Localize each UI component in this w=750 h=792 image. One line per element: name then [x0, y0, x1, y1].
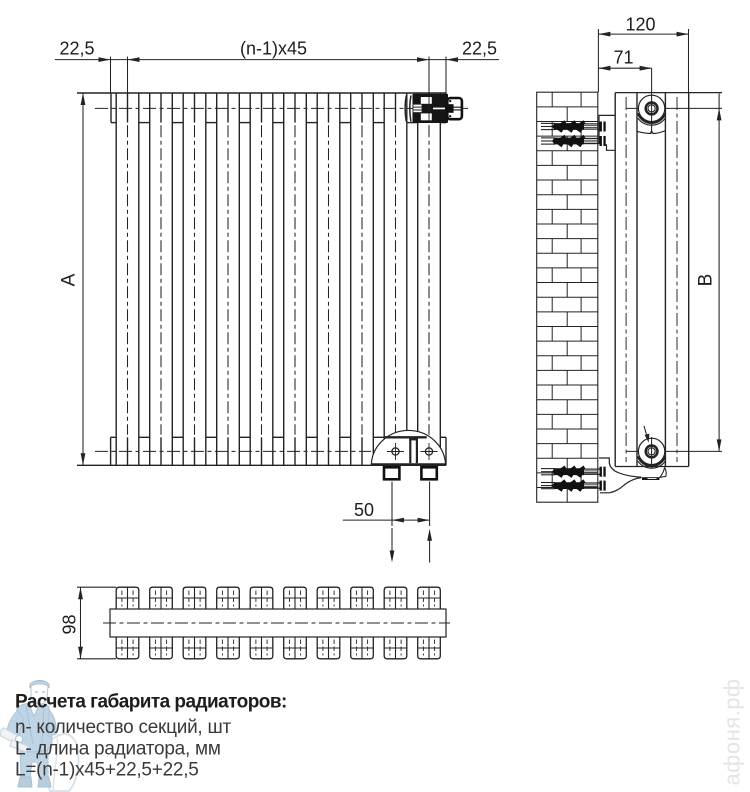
svg-text:Расчета габарита радиаторов:: Расчета габарита радиаторов: — [15, 692, 287, 713]
svg-text:22,5: 22,5 — [59, 39, 94, 59]
svg-text:n- количество секций, шт: n- количество секций, шт — [15, 717, 231, 738]
svg-text:98: 98 — [60, 614, 80, 634]
svg-text:50: 50 — [354, 500, 374, 520]
svg-text:120: 120 — [625, 14, 655, 34]
svg-text:афоня.рф: афоня.рф — [720, 678, 745, 785]
svg-text:71: 71 — [613, 47, 633, 67]
svg-text:B: B — [696, 274, 717, 287]
svg-text:A: A — [59, 273, 80, 286]
svg-text:22,5: 22,5 — [462, 39, 497, 59]
svg-text:(n-1)x45: (n-1)x45 — [240, 39, 307, 59]
svg-text:L- длина радиатора, мм: L- длина радиатора, мм — [15, 739, 221, 760]
svg-text:L=(n-1)x45+22,5+22,5: L=(n-1)x45+22,5+22,5 — [15, 760, 199, 781]
